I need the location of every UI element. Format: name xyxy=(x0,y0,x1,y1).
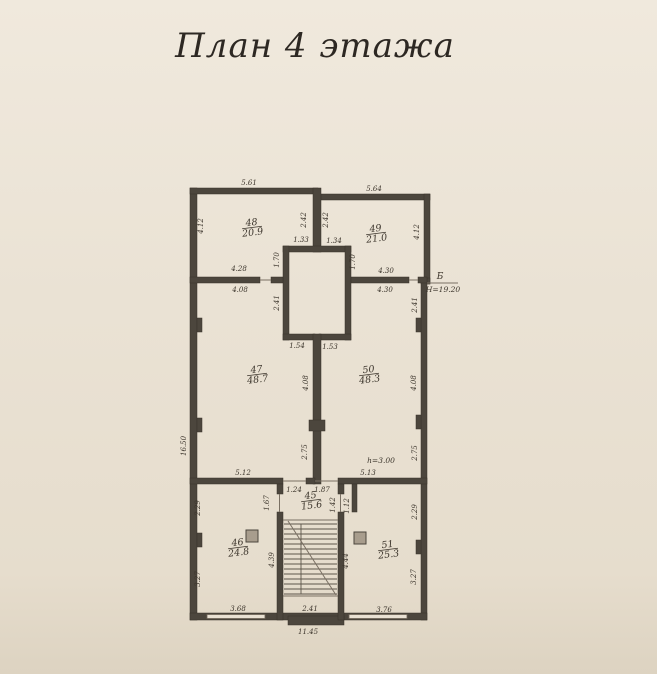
window-room51 xyxy=(349,615,407,619)
room-area: 15.6 xyxy=(301,499,323,512)
dimension-label: 1.87 xyxy=(314,486,330,494)
dimension-label: 16.50 xyxy=(180,435,188,456)
wall-divider-right-a xyxy=(351,277,409,283)
room-label-50: 5048.3 xyxy=(356,363,381,387)
dimension-label: 5.64 xyxy=(366,185,382,193)
wall-cross-left xyxy=(190,478,283,484)
shaft-wall-bottom-left xyxy=(283,334,315,340)
dimension-label: 4.39 xyxy=(268,552,276,569)
level-label: Н=19.20 xyxy=(425,285,461,294)
dimension-label: 5.61 xyxy=(241,179,257,187)
room-area: 48.7 xyxy=(246,373,270,387)
dimension-label: 1.42 xyxy=(329,497,337,513)
axis-label: Б xyxy=(436,272,444,282)
column-room51 xyxy=(354,532,366,544)
wall-segment-entry-bay xyxy=(288,616,344,625)
dimension-label: 4.30 xyxy=(377,267,394,275)
dimension-label: 1.70 xyxy=(349,254,357,270)
stair-wall-left-a xyxy=(277,484,283,494)
dimension-label: 4.12 xyxy=(413,224,421,241)
dimension-label: 4.12 xyxy=(197,218,205,235)
dimension-label: 1.24 xyxy=(286,486,302,494)
dimension-label: 4.28 xyxy=(230,265,247,273)
pilaster xyxy=(197,418,202,432)
dimension-label: 1.70 xyxy=(273,252,281,268)
staircase xyxy=(283,520,338,596)
dimension-label: 2.41 xyxy=(301,605,318,613)
dimension-label: 1.34 xyxy=(326,237,342,245)
room-label-48: 4820.9 xyxy=(239,216,264,240)
dimension-label: 4.30 xyxy=(376,286,393,294)
wall-segment-right-lower xyxy=(421,278,427,620)
note-label: h=3.00 xyxy=(367,456,395,465)
window-room46 xyxy=(207,615,265,619)
dimension-label: 1.67 xyxy=(263,495,271,511)
pilaster xyxy=(197,533,202,547)
pilaster xyxy=(416,540,421,554)
pilaster xyxy=(416,415,421,429)
dimension-label: 5.13 xyxy=(360,469,376,477)
room-area: 21.0 xyxy=(365,232,388,246)
room-label-47: 4748.7 xyxy=(244,363,269,387)
dimension-label: 11.45 xyxy=(298,628,319,636)
dimension-label: 1.53 xyxy=(322,343,338,351)
dimension-label: 3.27 xyxy=(410,569,418,585)
wall-center-top xyxy=(313,188,321,252)
room-label-51: 5125.3 xyxy=(375,538,400,562)
dimension-label: 2.42 xyxy=(300,212,308,229)
wall-segment-left xyxy=(190,188,197,620)
shaft-wall-bottom-right xyxy=(319,334,351,340)
dimension-label: 1.12 xyxy=(343,498,351,514)
dimension-label: 2.29 xyxy=(194,500,202,517)
dimension-label: 1.33 xyxy=(293,236,309,244)
dimension-label: 4.08 xyxy=(410,375,418,392)
dimension-label: 2.41 xyxy=(411,297,419,314)
openings xyxy=(260,280,458,512)
dimension-label: 3.76 xyxy=(376,606,392,614)
dimension-label: 5.12 xyxy=(235,469,251,477)
room-area: 24.8 xyxy=(227,546,250,560)
room-area: 48.3 xyxy=(358,373,381,387)
dimension-label: 4.44 xyxy=(342,553,350,570)
pilaster xyxy=(416,318,421,332)
dimension-label: 3.68 xyxy=(230,605,246,613)
wall-segment-top-left xyxy=(190,188,318,194)
room-label-49: 4921.0 xyxy=(363,222,388,246)
stair-wall-right-a xyxy=(338,484,344,494)
wall-divider-left-b xyxy=(271,277,283,283)
wall-divider-right-b xyxy=(418,277,427,283)
dimension-label: 2.42 xyxy=(322,212,330,229)
room-labels-layer: 4820.94921.04748.75048.34515.64624.85125… xyxy=(225,216,400,562)
dimension-label: 1.54 xyxy=(289,342,305,350)
room-area: 25.3 xyxy=(377,548,400,562)
room-area: 20.9 xyxy=(241,226,264,240)
column-room46 xyxy=(246,530,258,542)
nook-wall-room51 xyxy=(352,484,357,512)
wall-center-mid xyxy=(313,334,321,484)
dimension-label: 2.75 xyxy=(411,445,419,462)
dimension-label: 2.75 xyxy=(301,444,309,461)
columns xyxy=(246,530,366,544)
shaft-wall-top xyxy=(283,246,351,252)
wall-center-pilaster xyxy=(309,420,325,431)
floor-plan-drawing: 4820.94921.04748.75048.34515.64624.85125… xyxy=(0,0,657,674)
dimension-label: 4.08 xyxy=(231,286,248,294)
dimension-label: 2.29 xyxy=(411,504,419,521)
stair-wall-left-b xyxy=(277,512,283,620)
wall-divider-left-a xyxy=(190,277,260,283)
dimension-label: 2.41 xyxy=(273,295,281,312)
dimension-label: 3.27 xyxy=(194,571,202,587)
scanned-floor-plan-page: План 4 этажа xyxy=(0,0,657,674)
pilaster xyxy=(197,318,202,332)
wall-cross-stub xyxy=(306,478,315,484)
elevator-shaft xyxy=(283,246,351,340)
wall-segment-right-upper xyxy=(424,194,430,284)
dimension-label: 4.08 xyxy=(302,375,310,392)
wall-segment-top-right xyxy=(316,194,430,200)
shaft-wall-left xyxy=(283,246,289,340)
wall-cross-right xyxy=(338,478,427,484)
